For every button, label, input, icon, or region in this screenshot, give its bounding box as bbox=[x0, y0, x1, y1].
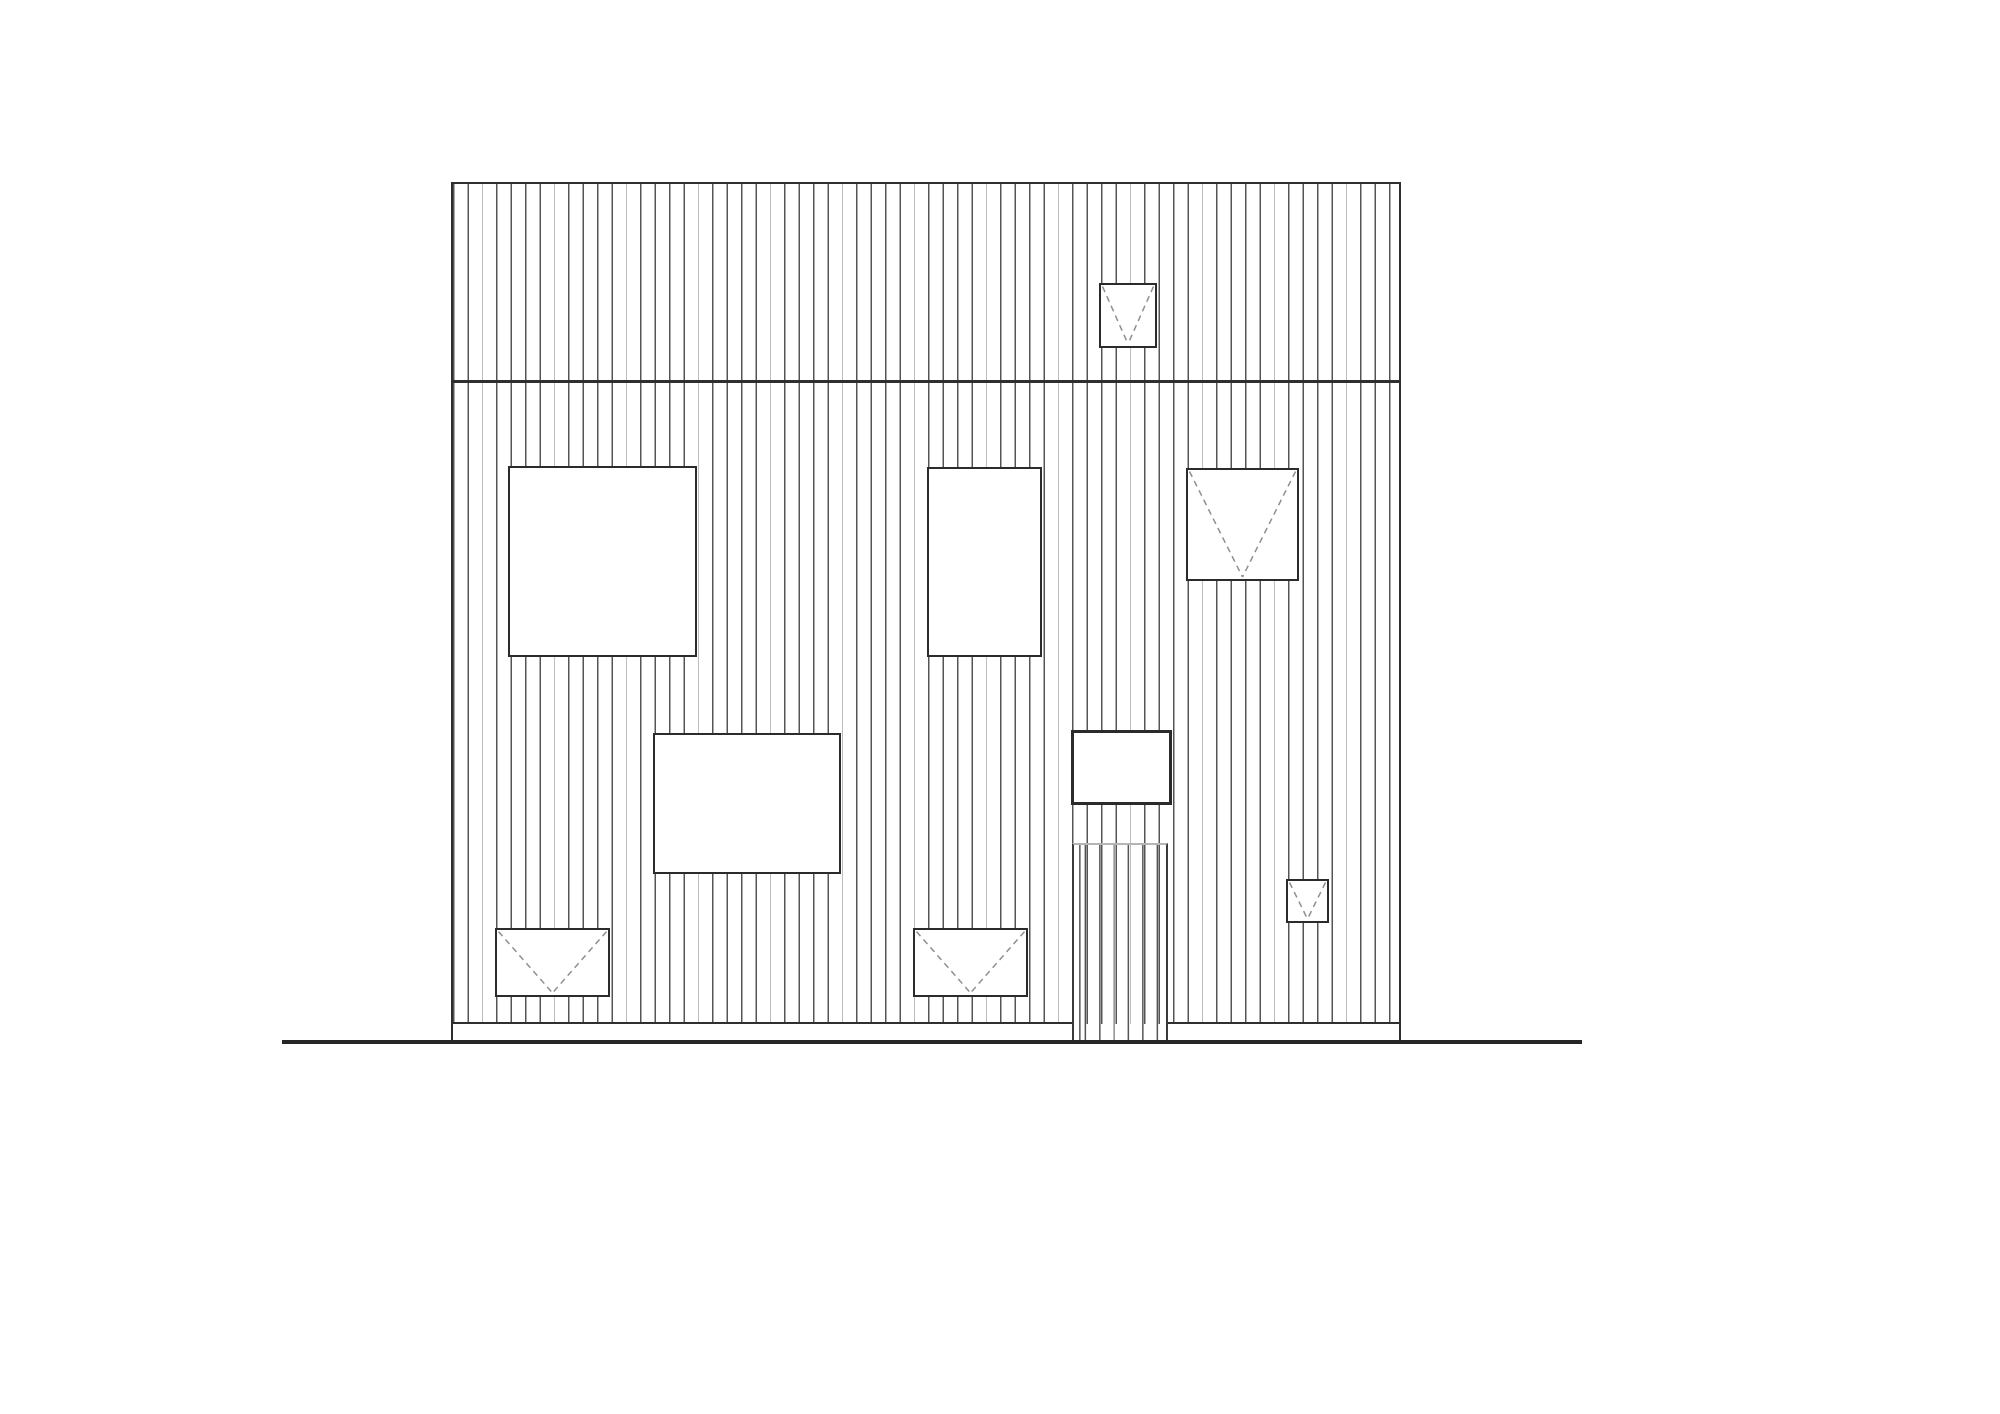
window-small-lower-right bbox=[1286, 879, 1329, 923]
hinge-indicator-icon bbox=[1188, 470, 1297, 579]
elevation-canvas bbox=[0, 0, 2000, 1414]
hinge-indicator-icon bbox=[497, 930, 608, 995]
window-above-door bbox=[1071, 730, 1172, 805]
entrance-door bbox=[1072, 843, 1168, 1042]
window-bottom-left bbox=[495, 928, 610, 997]
hinge-indicator-icon bbox=[1288, 881, 1327, 921]
window-middle-tall bbox=[927, 467, 1042, 657]
window-right-square bbox=[1186, 468, 1299, 581]
window-bottom-middle bbox=[913, 928, 1028, 997]
window-upper-band-small bbox=[1099, 283, 1157, 348]
ground-line bbox=[282, 1040, 1582, 1044]
hinge-indicator-icon bbox=[915, 930, 1026, 995]
window-lower-middle-wide bbox=[653, 733, 841, 874]
upper-band-joint-line bbox=[451, 380, 1401, 383]
window-left-large-square bbox=[508, 466, 697, 657]
hinge-indicator-icon bbox=[1101, 285, 1155, 346]
